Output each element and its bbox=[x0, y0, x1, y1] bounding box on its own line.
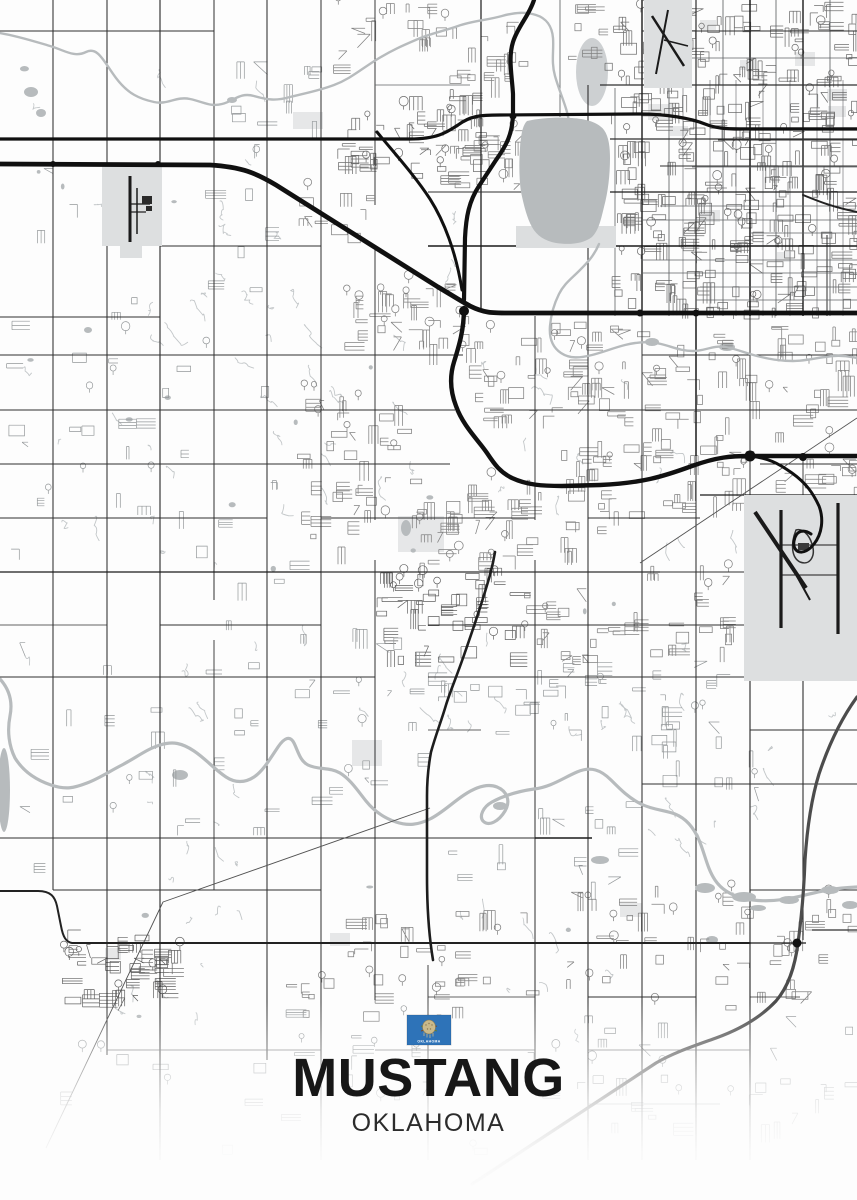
state-subtitle: OKLAHOMA bbox=[0, 1111, 857, 1136]
map-poster: OKLAHOMA MUSTANG OKLAHOMA bbox=[0, 0, 857, 1200]
osage-shield-icon bbox=[422, 1020, 435, 1034]
flag-label: OKLAHOMA bbox=[417, 1040, 440, 1044]
city-title: MUSTANG bbox=[0, 1051, 857, 1105]
oklahoma-flag: OKLAHOMA bbox=[407, 1015, 451, 1045]
